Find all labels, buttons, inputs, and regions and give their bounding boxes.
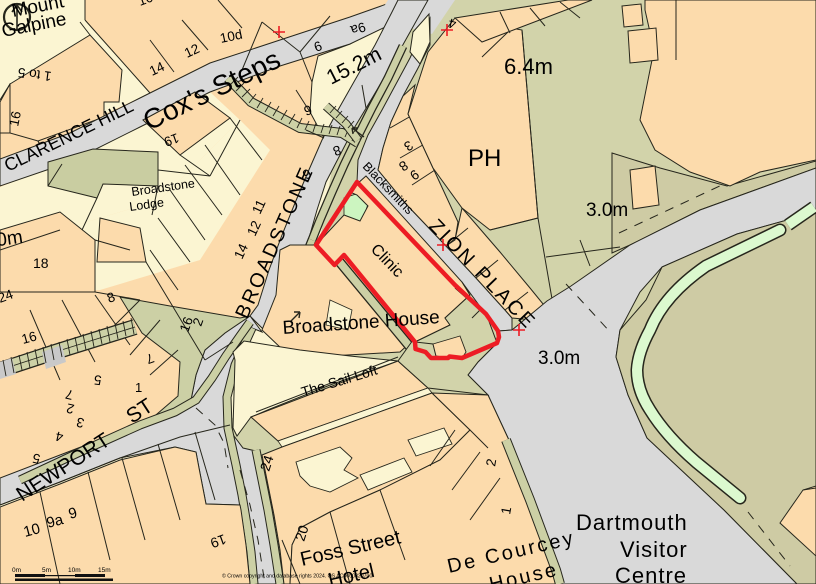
svg-text:1: 1 — [135, 380, 142, 395]
svg-text:10m: 10m — [68, 567, 81, 574]
svg-text:3.0m: 3.0m — [538, 348, 580, 369]
svg-text:3.0m: 3.0m — [586, 200, 628, 221]
svg-text:Dartmouth: Dartmouth — [576, 510, 688, 535]
svg-text:16: 16 — [6, 110, 24, 128]
svg-text:PH: PH — [468, 145, 501, 172]
svg-text:Centre: Centre — [615, 563, 687, 584]
svg-text:Visitor: Visitor — [620, 537, 688, 562]
svg-text:6.4m: 6.4m — [504, 54, 553, 79]
svg-text:18: 18 — [33, 255, 49, 271]
svg-text:5m: 5m — [42, 567, 51, 574]
svg-text:15m: 15m — [98, 567, 111, 574]
svg-text:0m: 0m — [12, 567, 21, 574]
svg-text:© Crown copyright and database: © Crown copyright and database rights 20… — [222, 573, 372, 580]
